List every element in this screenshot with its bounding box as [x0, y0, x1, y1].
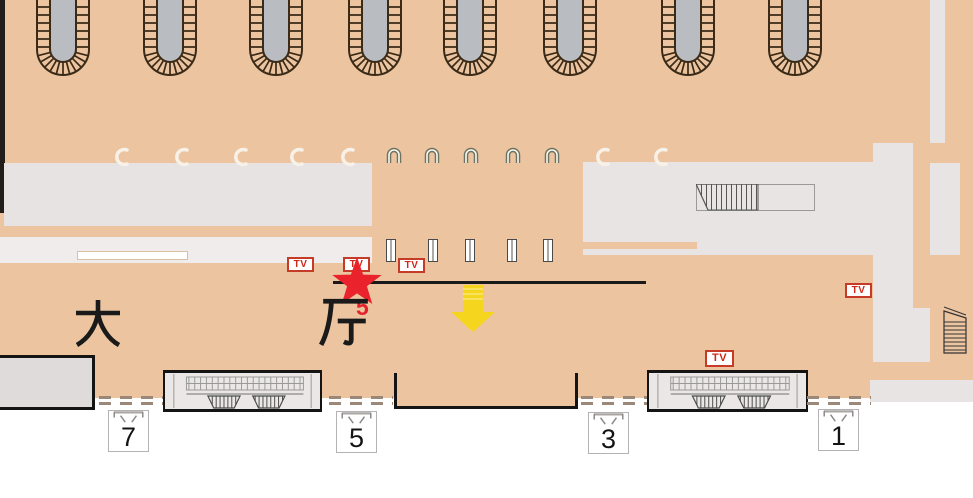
tv-badge: TV — [287, 257, 314, 272]
stairs-icon — [943, 305, 968, 355]
gate-number: 7 — [121, 424, 136, 451]
gate-number: 1 — [831, 423, 846, 450]
platform-arch-icon — [443, 0, 497, 76]
escalator-block — [647, 370, 808, 412]
sliding-door-dashes — [99, 396, 163, 405]
staple-icon — [424, 147, 440, 164]
central-building-notch — [583, 242, 697, 249]
right-corridor-lower — [873, 308, 930, 362]
staple-icon — [463, 147, 479, 164]
door-pillar-icon — [428, 239, 438, 262]
door-pillar-icon — [465, 239, 475, 262]
platform-arch-icon — [249, 0, 303, 76]
platform-arch-icon — [143, 0, 197, 76]
hook-icon — [340, 147, 358, 167]
staple-icon — [544, 147, 560, 164]
hook-icon — [233, 147, 251, 167]
platform-arch-icon — [543, 0, 597, 76]
hall-char-da-glyph — [72, 296, 124, 348]
tv-badge-label: TV — [405, 261, 419, 271]
gate-number: 3 — [601, 426, 616, 453]
hook-icon — [114, 147, 132, 167]
bottom-right-structure — [870, 380, 973, 402]
gate-marker-5: 5 — [336, 411, 377, 453]
tv-badge: TV — [398, 258, 425, 273]
escalator-icon — [649, 373, 806, 409]
gate-marker-3: 3 — [588, 412, 629, 454]
station-floorplan: TV TV TV TV TV 5 大 厅 7 — [0, 0, 973, 498]
tv-badge: TV — [845, 283, 872, 298]
sliding-door-dashes — [581, 396, 647, 405]
right-mid-structure — [930, 163, 960, 255]
escalator-block — [163, 370, 322, 412]
tv-badge-label: TV — [294, 260, 308, 270]
sliding-door-dashes — [807, 396, 871, 405]
platform-arch-icon — [36, 0, 90, 76]
tv-badge-label: TV — [852, 286, 866, 296]
hook-icon — [595, 147, 613, 167]
sliding-door-dashes — [329, 396, 393, 405]
right-corridor-upper — [873, 143, 913, 308]
tv-badge: TV — [705, 350, 734, 367]
door-pillar-icon — [386, 239, 396, 262]
gate-marker-1: 1 — [818, 409, 859, 451]
entrance-bay — [394, 373, 578, 409]
escalator-icon — [165, 373, 320, 409]
door-pillar-icon — [507, 239, 517, 262]
gate-number: 5 — [349, 425, 364, 452]
staple-icon — [386, 147, 402, 164]
staple-icon — [505, 147, 521, 164]
platform-arch-icon — [661, 0, 715, 76]
top-right-strip — [930, 0, 945, 143]
door-pillar-icon — [543, 239, 553, 262]
hook-icon — [289, 147, 307, 167]
hook-icon — [653, 147, 671, 167]
platform-arch-icon — [348, 0, 402, 76]
gate-marker-7: 7 — [108, 410, 149, 452]
tv-badge-label: TV — [712, 353, 727, 364]
down-arrow-icon — [451, 285, 495, 332]
hall-char-ting-glyph — [318, 294, 372, 348]
counter-rect — [77, 251, 188, 260]
bottom-left-structure — [0, 355, 95, 410]
left-upper-structure — [4, 163, 372, 226]
platform-arch-icon — [768, 0, 822, 76]
stairs-icon — [696, 184, 816, 212]
hook-icon — [174, 147, 192, 167]
